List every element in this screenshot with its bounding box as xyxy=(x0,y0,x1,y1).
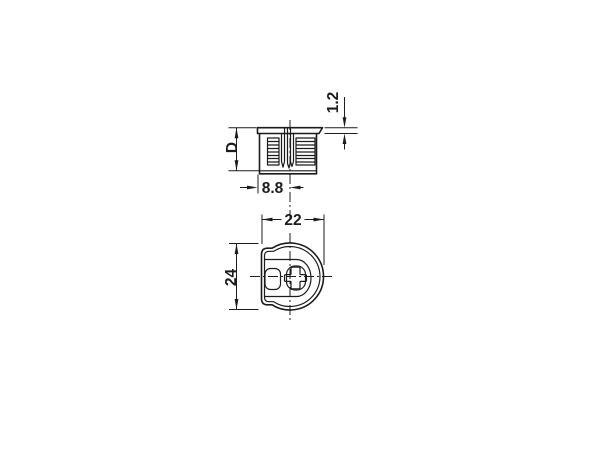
dim-1-2-label: 1.2 xyxy=(325,92,342,114)
side-view-left-ribs xyxy=(268,138,280,165)
dim-d-arrow-down xyxy=(235,160,239,171)
technical-drawing-canvas: D 8.8 1.2 xyxy=(0,0,600,450)
top-view-cam-slot xyxy=(265,260,312,297)
dim-22-arrow-right xyxy=(314,218,325,222)
side-view: D 8.8 1.2 xyxy=(224,92,358,222)
dim-22-arrow-left xyxy=(262,218,273,222)
top-view-pozi-socket xyxy=(285,266,307,290)
top-view-bolt-plug xyxy=(265,269,281,290)
dim-8-8-label: 8.8 xyxy=(262,180,284,197)
dim-8-8-arrow-left xyxy=(290,186,301,190)
dim-d-label: D xyxy=(224,142,241,153)
cam-fitting-drawing: D 8.8 1.2 xyxy=(0,0,600,450)
dim-24-arrow-down xyxy=(235,299,239,310)
dim-8-8-arrow-right xyxy=(247,186,258,190)
dimension-D: D xyxy=(224,128,259,171)
dimension-22: 22 xyxy=(262,212,324,265)
pozi-socket-outline xyxy=(287,266,306,290)
dim-1-2-arrow-down xyxy=(343,117,347,128)
top-view: 22 24 xyxy=(223,212,332,320)
dim-1-2-arrow-up xyxy=(343,134,347,145)
dim-d-arrow-up xyxy=(235,128,239,139)
dimension-8-8: 8.8 xyxy=(240,175,304,197)
dimension-1-2: 1.2 xyxy=(325,92,358,150)
dim-24-label: 24 xyxy=(223,269,240,287)
side-view-right-ribs xyxy=(296,138,315,165)
dim-24-arrow-up xyxy=(235,244,239,255)
dim-22-label: 22 xyxy=(284,212,301,229)
